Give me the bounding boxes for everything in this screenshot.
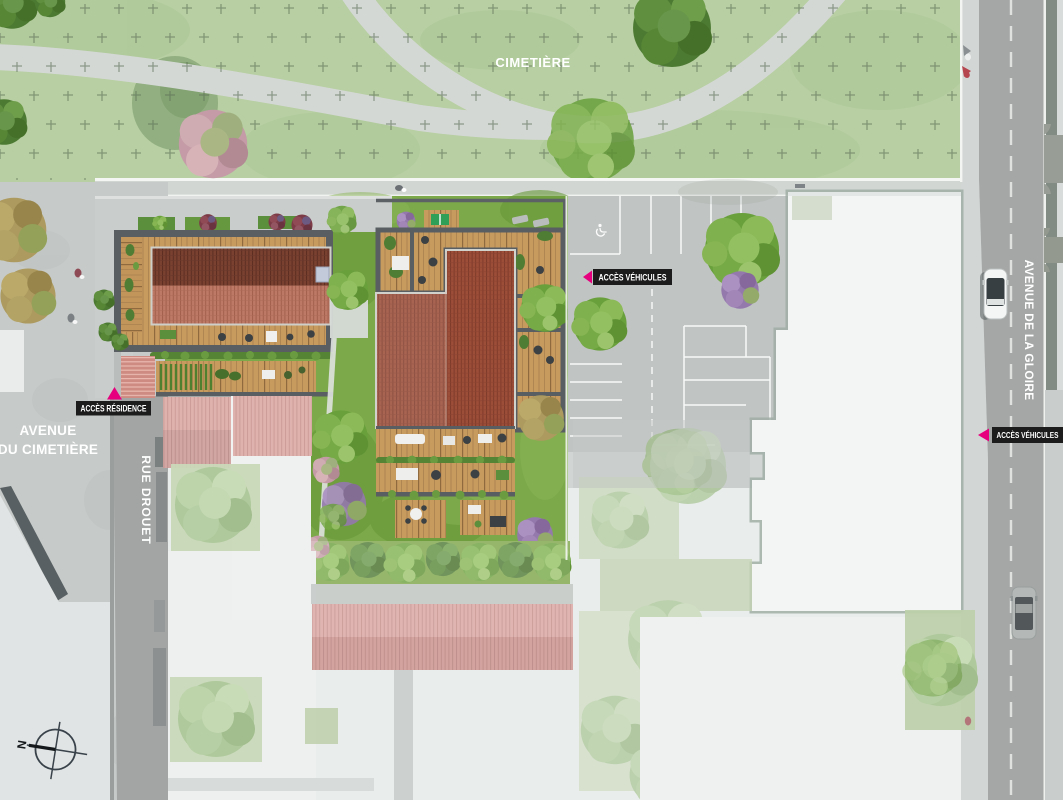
svg-text:AVENUE: AVENUE [19,423,76,438]
svg-text:DU CIMETIÈRE: DU CIMETIÈRE [0,442,98,457]
svg-text:ACCÈS VÉHICULES: ACCÈS VÉHICULES [599,272,667,282]
svg-text:ACCÈS RÉSIDENCE: ACCÈS RÉSIDENCE [81,403,147,413]
svg-text:ACCÈS VÉHICULES: ACCÈS VÉHICULES [997,430,1059,440]
svg-text:RUE DROUET: RUE DROUET [139,455,153,544]
svg-text:AVENUE DE LA GLOIRE: AVENUE DE LA GLOIRE [1022,260,1036,401]
svg-text:CIMETIÈRE: CIMETIÈRE [495,55,570,70]
